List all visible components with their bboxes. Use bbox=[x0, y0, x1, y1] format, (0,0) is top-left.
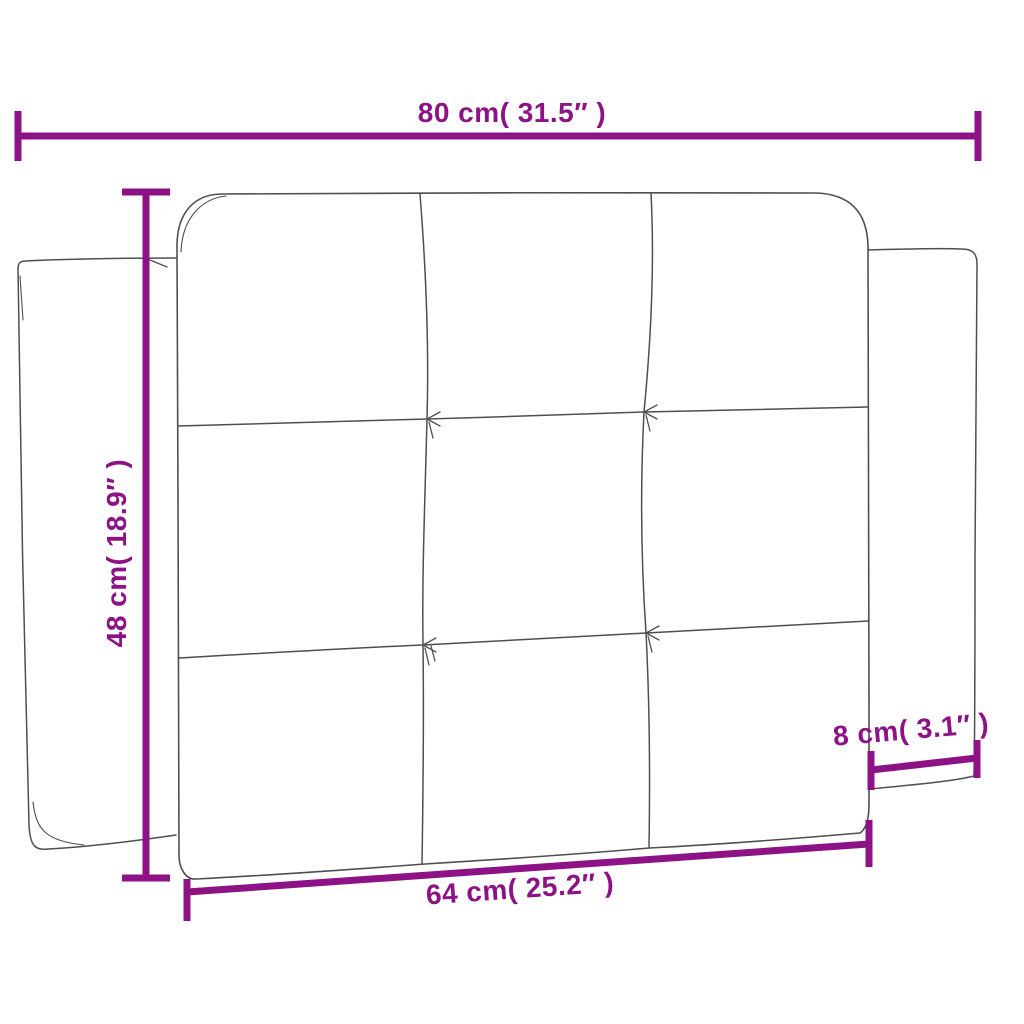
headboard-line-drawing bbox=[0, 0, 1024, 1024]
left-back-panel-crease-bottom bbox=[33, 802, 84, 845]
left-back-panel-outline bbox=[18, 258, 176, 849]
left-back-panel-crease-left bbox=[20, 276, 23, 320]
side-height-dimension-label: 48 cm( 18.9″ ) bbox=[101, 459, 133, 648]
cushion bbox=[177, 193, 869, 879]
left-back-panel-crease-top bbox=[150, 260, 167, 267]
cushion-outline bbox=[177, 193, 869, 879]
right-back-panel-outline bbox=[868, 249, 977, 789]
side-depth-dimension-line bbox=[871, 758, 977, 770]
dimension-diagram: 80 cm( 31.5″ ) 48 cm( 18.9″ ) 64 cm( 25.… bbox=[0, 0, 1024, 1024]
top-width-dimension-label: 80 cm( 31.5″ ) bbox=[418, 97, 607, 129]
